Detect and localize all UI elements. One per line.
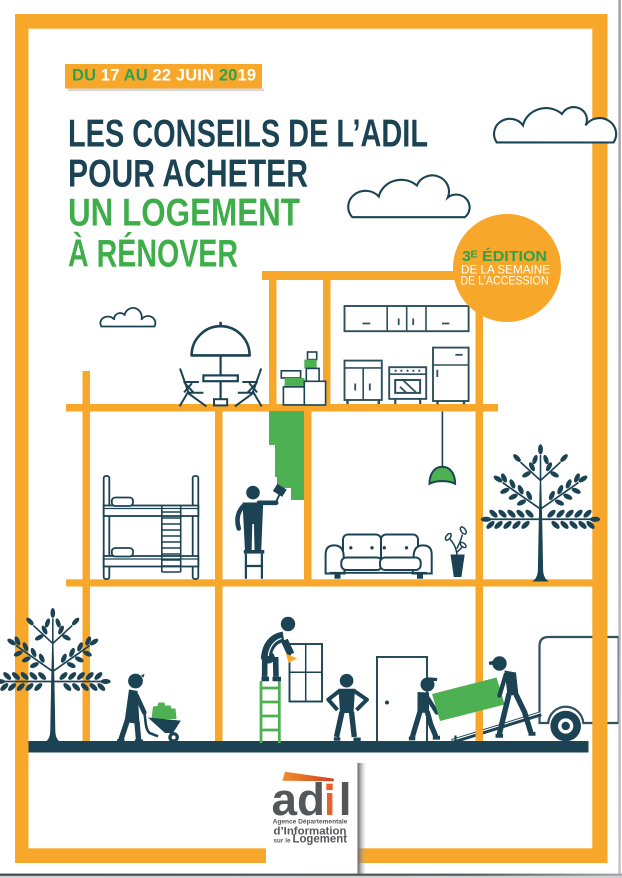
- svg-text:DU 17 AU 22 JUIN 2019: DU 17 AU 22 JUIN 2019: [72, 67, 256, 85]
- svg-text:À RÉNOVER: À RÉNOVER: [68, 232, 238, 276]
- svg-text:Agence Départementale: Agence Départementale: [273, 819, 348, 826]
- svg-text:POUR ACHETER: POUR ACHETER: [68, 153, 308, 196]
- svg-text:DE L’ACCESSION: DE L’ACCESSION: [461, 273, 549, 287]
- svg-text:ad: ad: [272, 774, 326, 825]
- svg-text:Logement: Logement: [293, 834, 348, 846]
- svg-text:LES CONSEILS DE L’ADIL: LES CONSEILS DE L’ADIL: [68, 113, 428, 156]
- svg-text:UN LOGEMENT: UN LOGEMENT: [68, 191, 300, 234]
- svg-text:sur le: sur le: [274, 838, 292, 845]
